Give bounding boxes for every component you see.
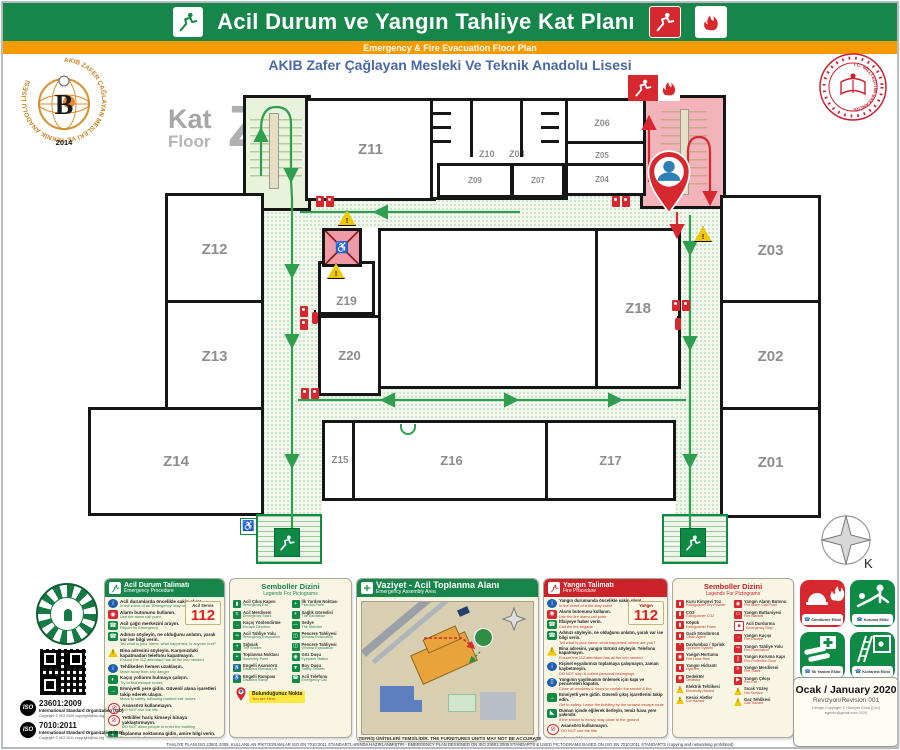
- badge-protection-team: ☎Koruma Ekibi: [850, 580, 895, 627]
- school-logo: AKIB ZAFER ÇAĞLAYAN MESLEKİ VE TEKNİK AN…: [16, 52, 112, 157]
- instruction-icon: ◉: [547, 610, 557, 619]
- legend-item-icon: ◉: [676, 653, 684, 661]
- legend-item-icon: ♿: [233, 675, 241, 683]
- footer-disclaimer: TEFRİŞ ÜNİTELERİ TEMSİLİDİR. THE FURNITU…: [0, 736, 900, 741]
- symbols-column: ▮Acil Çıkış KapısıEmergency Exit≡Acil Me…: [233, 600, 290, 685]
- legend-item-icon: ▮: [676, 611, 684, 619]
- flames-icon: [658, 75, 680, 101]
- legend-item-icon: →: [734, 634, 742, 642]
- room-z06: Z06: [558, 98, 646, 147]
- you-are-here-legend: Bulunduğunuz NoktaYou are Here: [230, 685, 351, 708]
- legend-item-icon: ▼: [292, 664, 300, 672]
- instruction-row: ◣ Duman içinde eğilerek ilerleyin, temiz…: [547, 709, 664, 723]
- header-bar: Acil Durum ve Yangın Tahliye Kat Planı: [3, 3, 897, 41]
- legend-item-icon: ▮: [676, 632, 684, 640]
- fire-exit-icon: [649, 6, 681, 38]
- legend-item: ▮CO2Extinguisher CO2: [676, 611, 732, 619]
- legend-item-icon: ▮: [676, 664, 684, 672]
- legend-item: ◉Yangın HortumuFire Hose Reel: [676, 653, 732, 661]
- legend-item-icon: ▮: [676, 600, 684, 608]
- legend-item-icon: ▮: [233, 600, 241, 608]
- legend-item: ♿Engelli RampasıDisabled Ramp: [233, 675, 290, 683]
- room-z01: Z01: [720, 407, 821, 518]
- legend-item-icon: ▶: [734, 677, 742, 685]
- qr-code: [40, 649, 86, 695]
- legend-item-icon: ≡: [233, 611, 241, 619]
- instruction-icon: ◐: [108, 675, 118, 684]
- legend-item: —SedyeThe Strecher: [292, 621, 349, 629]
- legend-item: !Elektrik TehlikesiElectricity Hazard: [676, 685, 732, 693]
- badge-first-aid-team: ☎İlk Yardım Ekibi: [800, 632, 845, 679]
- legend-item-icon: ▮: [676, 621, 684, 629]
- symbols-column: ▮Kuru Kimyevi TozExtinguisher Dry Powder…: [676, 600, 732, 709]
- legend-item: →Yangın KaçışıFire Escape: [734, 634, 790, 642]
- legend-item: ◉Yangın Alarm ButonuFire Alarm Call Poin…: [734, 600, 790, 608]
- compass-label: K: [864, 556, 873, 571]
- panel-header: ✛ Vaziyet - Acil Toplanma AlanıEmergency…: [357, 579, 538, 597]
- instruction-icon: ◣: [547, 709, 557, 718]
- room-z20: Z20: [318, 315, 381, 396]
- instruction-icon: →: [108, 686, 118, 695]
- legend-item-icon: ◫: [292, 632, 300, 640]
- legend-item: +Sağlık GörevlisiThe Sanitarian: [292, 611, 349, 619]
- school-year: 2014: [56, 138, 74, 147]
- room-z10-label: Z10: [479, 149, 495, 159]
- room-z13: Z13: [165, 300, 264, 413]
- extinguisher-icon: [312, 312, 318, 324]
- no-elevator-icon: ♿: [322, 228, 362, 267]
- room-z17: Z17: [545, 420, 676, 501]
- legend-item: ▮Kuru Kimyevi TozExtinguisher Dry Powder: [676, 600, 732, 608]
- legend-item-icon: ◉: [292, 653, 300, 661]
- extinguisher-icon: [675, 318, 681, 330]
- corridor-left: [258, 195, 322, 517]
- legend-item: ▮Yangın HidrantıHydrant: [676, 664, 732, 672]
- instruction-row: ☎ Adınızı söyleyin, ne olduğunu anlatın,…: [547, 631, 664, 645]
- room-z19: Z19: [318, 261, 375, 315]
- legend-item-icon: !: [676, 696, 684, 704]
- legend-item-icon: *: [676, 643, 684, 651]
- assembly-point-icon: ✛: [361, 582, 373, 594]
- legend-item-icon: ■: [734, 621, 744, 631]
- symbols-panel-red: Semboller DiziniLegends For Pictograms ▮…: [672, 578, 794, 738]
- symbols-column: +İlk Yardım NoktasıFirst Aid Point+Sağlı…: [292, 600, 349, 685]
- evacuation-plan-poster: Acil Durum ve Yangın Tahliye Kat Planı E…: [0, 0, 900, 750]
- legend-item-icon: !: [734, 698, 742, 706]
- legend-item: ◉Göz DuşuEyewash Station: [292, 653, 349, 661]
- legend-item-icon: →: [233, 621, 241, 629]
- instruction-row: ⊘ Yetkililer hariç kimseyi binaya yaklaş…: [108, 715, 221, 730]
- legend-item-icon: +: [233, 653, 241, 661]
- symbols-column: ◉Yangın Alarm ButonuFire Alarm Call Poin…: [734, 600, 790, 709]
- school-name: AKIB Zafer Çağlayan Mesleki Ve Teknik An…: [0, 57, 900, 73]
- exit-man-icon: [173, 7, 203, 37]
- legend-item: ▯Yangın Koruma KapıFire Protection Door: [734, 655, 790, 663]
- school-letter: B: [55, 90, 74, 121]
- legend-item: ▶Yangın ÇıkışıFire Exit: [734, 677, 790, 685]
- room-z09: Z09: [437, 163, 513, 198]
- instruction-icon: !: [108, 648, 118, 657]
- panel-header: Acil Durum TalimatıEmergency Procedure: [105, 579, 224, 597]
- room-z14: Z14: [88, 407, 264, 516]
- phone-icon: ☎: [855, 669, 861, 675]
- instruction-icon: ☎: [547, 631, 557, 640]
- instruction-row: ▯ Yangının yayılmasını önlemek için kapı…: [547, 678, 664, 692]
- instruction-row: ☎ Adınızı söyleyin, ne olduğunu anlatın,…: [108, 632, 221, 647]
- phone-icon: ☎: [856, 617, 862, 623]
- fire-alarm-and-hose-icons: [612, 196, 630, 207]
- corridor-right: [675, 195, 720, 517]
- legend-item: →Kaçış YönlendirmeEscape Direction: [233, 621, 290, 629]
- revision-date: Ocak / January 2020: [794, 684, 898, 696]
- room-z03: Z03: [720, 195, 821, 306]
- legend-item: ▮Acil Çıkış KapısıEmergency Exit: [233, 600, 290, 608]
- phone-icon: ☎: [805, 669, 811, 675]
- instruction-row: → Emniyetli yere gidin. Güvenli alana iş…: [108, 686, 221, 701]
- legend-item: ▼Boy DuşuSafety Shower: [292, 664, 349, 672]
- instruction-row: ⊘ Asansörü kullanmayın.DO NOT use the li…: [108, 703, 221, 714]
- badge-rescue-team: ☎Kurtarma Ekibi: [850, 632, 895, 679]
- fire-alarm-and-hose-icons: [316, 196, 334, 207]
- badge-fire-team: ☎Söndürme Ekibi: [800, 580, 845, 627]
- page-subtitle: Emergency & Fire Evacuation Floor Plan: [363, 43, 537, 53]
- legend-item-icon: ☎: [292, 675, 300, 683]
- footer-standards: TAHLİYE PLANI ISO 23601:2009, KULLANILAN…: [0, 742, 900, 747]
- emergency-number-box: Acil Servis 112: [185, 601, 221, 625]
- wheelchair-icon: ♿: [240, 518, 257, 535]
- fire-alarm-and-hose-icons: [672, 300, 690, 311]
- legend-item: ◖SığınakThe Shelter: [233, 643, 290, 651]
- you-are-here-pin: [646, 150, 692, 219]
- room-z07: Z07: [511, 163, 565, 198]
- legend-item-icon: ◫: [292, 643, 300, 651]
- legend-item: ◫Pencere TahliyesiWindow Evacuation: [292, 632, 349, 640]
- instruction-icon: ◉: [108, 610, 118, 619]
- legend-item: !Sıcak YüzeyHot Surface: [734, 687, 790, 695]
- instruction-icon: ⊘: [547, 724, 559, 735]
- legend-item-icon: ◖: [233, 643, 241, 651]
- instruction-icon: i: [108, 664, 118, 673]
- fire-hose-icon: [300, 306, 308, 330]
- legend-item-icon: ≡: [734, 666, 742, 674]
- legend-item: ▮Gazlı SöndürücüClean Agent: [676, 632, 732, 640]
- legend-item: ▭Yangın BattaniyesiFire Blanket: [734, 611, 790, 619]
- legend-item-icon: ▭: [734, 611, 742, 619]
- legend-item-icon: ⇒: [233, 632, 241, 640]
- legend-item-icon: ⇒: [734, 645, 742, 653]
- ministry-seal: T.C. MİLLÎ EĞİTİM BAKANLIĞI: [818, 52, 888, 127]
- instruction-icon: i: [108, 599, 118, 608]
- instruction-row: i Kişisel eşyalarınızı toplamaya çalışma…: [547, 662, 664, 676]
- legend-item: ☎Acil TelefonuEmergency Call: [292, 675, 349, 683]
- flames-icon: [695, 6, 727, 38]
- legend-item: ≡Yangın MerdiveniFire Stairs: [734, 666, 790, 674]
- legend-item: !Gaz TehlikesiGaz Hazard: [734, 698, 790, 706]
- legend-item: *Davlumbaz / SprinkSprinkler System: [676, 643, 732, 651]
- instruction-icon: !: [547, 647, 557, 656]
- instruction-icon: i: [547, 662, 557, 671]
- instruction-icon: →: [547, 693, 557, 702]
- instruction-icon: ☎: [547, 620, 557, 629]
- legend-item-icon: !: [734, 687, 742, 695]
- legend-item: ◉DedektörDedector: [676, 675, 732, 683]
- instruction-icon: ☎: [108, 632, 118, 641]
- legend-item: ■Acil DurdurmaEmergency Stop: [734, 621, 790, 631]
- fire-number-box: Yangın 112: [628, 601, 664, 625]
- revision-number: Revizyon/Revision 001: [794, 697, 898, 704]
- room-z12: Z12: [165, 193, 264, 306]
- legend-item: ⇒Yangın Tahliye YoluFire Evacuation: [734, 645, 790, 653]
- legend-item-icon: —: [292, 621, 300, 629]
- you-are-here-pin-small: [236, 687, 246, 706]
- legend-item-icon: +: [292, 600, 300, 608]
- legend-item: ▮KöpükExtinguisher Foam: [676, 621, 732, 629]
- legend-item: ◫Pencere TahliyesiWindow Evacuation: [292, 643, 349, 651]
- page-title: Acil Durum ve Yangın Tahliye Kat Planı: [217, 9, 635, 35]
- exit-man-icon: [274, 528, 300, 557]
- legend-item: ⇒Acil Tahliye YoluEmergency Evacuation: [233, 632, 290, 640]
- phone-icon: ☎: [804, 617, 810, 623]
- instruction-row: → Emniyetli yere gidin. Güvenli çıkış iş…: [547, 693, 664, 707]
- fire-exit-sign: [628, 75, 680, 101]
- room-z02: Z02: [720, 300, 821, 413]
- room-z16: Z16: [352, 420, 551, 501]
- assembly-route-arrow: [362, 602, 534, 724]
- legend-item-icon: ♿: [233, 664, 241, 672]
- iso-23601-badge: ISO 23601:2009 International Standard Or…: [20, 700, 124, 718]
- instruction-row: ⊘ Asansörü kullanmayın.DO NOT use the li…: [547, 724, 664, 735]
- legend-item-icon: ◉: [676, 675, 684, 683]
- subtitle-bar: Emergency & Fire Evacuation Floor Plan: [3, 41, 897, 54]
- instruction-row: ! Bina adresini, yangın türünü söyleyin.…: [547, 647, 664, 661]
- instruction-row: ◐ Kaçış yollarını bulmaya çalışın.Try to…: [108, 675, 221, 685]
- fire-alarm-and-hose-icons: [301, 388, 319, 399]
- legend-item-icon: +: [292, 611, 300, 619]
- legend-item: ♿Engelli AsansörüDisabled Elevator Lift: [233, 664, 290, 672]
- legend-item-icon: !: [676, 685, 684, 693]
- instruction-row: i Tehlikeden hemen uzaklaşın.Move away f…: [108, 664, 221, 674]
- instruction-row: ! Bina adresini söyleyin. Karşınızdaki k…: [108, 648, 221, 663]
- legend-item: +İlk Yardım NoktasıFirst Aid Point: [292, 600, 349, 608]
- symbols-panel-green: Semboller DiziniLegends For Pictograms ▮…: [229, 578, 352, 738]
- iso-logo: ISO: [20, 700, 36, 716]
- exit-man-icon: [109, 582, 121, 594]
- legend-item-icon: ▯: [734, 655, 742, 663]
- fire-exit-icon: [548, 582, 560, 594]
- instruction-icon: ▯: [547, 678, 557, 687]
- room-z04: Z04: [558, 163, 646, 196]
- room-z11: Z11: [305, 98, 436, 201]
- certification-dial-logo: [36, 583, 98, 645]
- compass-rose: K: [818, 512, 880, 579]
- room-z18: Z18: [595, 228, 681, 389]
- panel-header: Yangın TalimatıFire Procedure: [544, 579, 667, 597]
- exit-man-icon: [680, 528, 706, 557]
- legend-item: !Kesici AletlerCut Hazard: [676, 696, 732, 704]
- room-central: [378, 228, 601, 389]
- instruction-icon: ☎: [108, 621, 118, 630]
- site-map: [361, 601, 534, 735]
- fire-procedure-panel: Yangın TalimatıFire Procedure i Yangın d…: [543, 578, 668, 738]
- legend-item: +Toplanma NoktasıAssembly Point: [233, 653, 290, 661]
- assembly-area-panel: ✛ Vaziyet - Acil Toplanma AlanıEmergency…: [356, 578, 539, 742]
- legend-item: ≡Acil MerdiveniEmergency Stairs: [233, 611, 290, 619]
- instruction-icon: i: [547, 599, 557, 608]
- floor-label: Kat Floor: [168, 106, 212, 150]
- legend-item-icon: ◉: [734, 600, 742, 608]
